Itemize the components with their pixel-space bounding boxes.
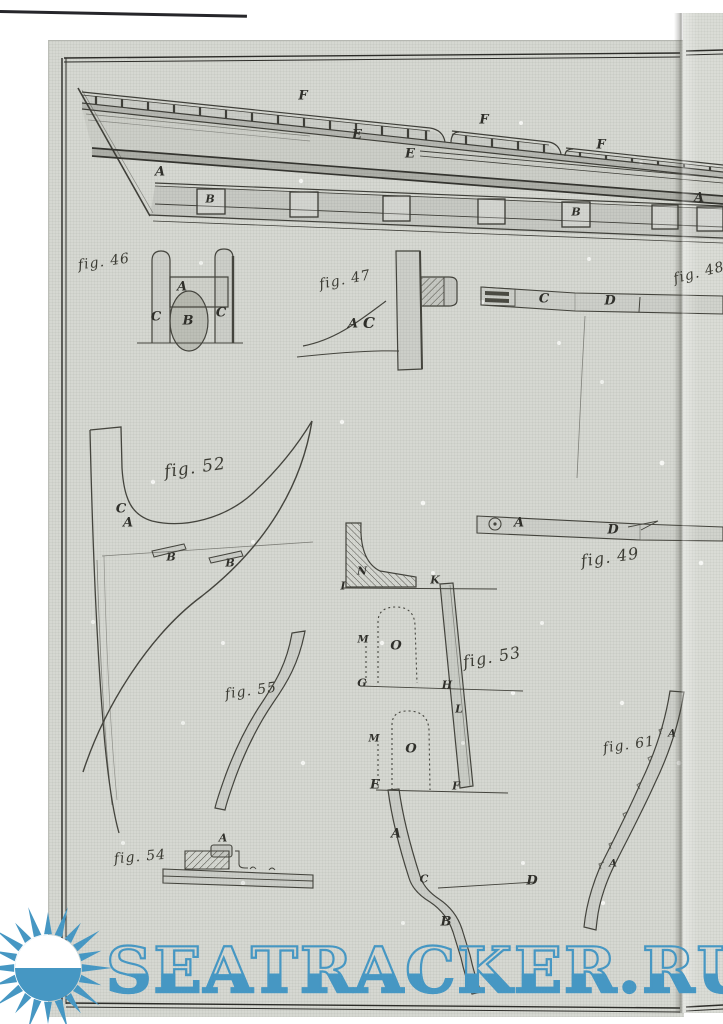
fig53-label-m1: M [357, 635, 368, 646]
fig53-label-d: D [526, 874, 537, 889]
fig46-label-c2: C [216, 306, 226, 321]
fig53-label-g: G [357, 677, 366, 690]
fig53-label-k: K [430, 574, 440, 587]
fig53-label-b: B [441, 915, 452, 930]
fig49-label-d: D [607, 523, 618, 538]
ship-label-f3: F [596, 138, 605, 153]
ship-label-f2: F [479, 113, 488, 128]
ship-label-b2: B [571, 206, 580, 219]
fig53-label-i: I [340, 580, 345, 593]
fig53-label-n: N [357, 565, 367, 578]
fig46-label-b: B [183, 314, 194, 329]
fig46-label-c1: C [151, 310, 161, 325]
scan-artifact-line [0, 10, 247, 17]
fig53-label-m2: M [368, 734, 379, 745]
fig53-label-c: C [420, 873, 429, 886]
fig52-label-c: C [116, 502, 126, 517]
plate-paper [48, 40, 684, 1017]
fig52-label-b1: B [166, 551, 175, 564]
fig53-label-o1: O [390, 639, 401, 654]
fig48-label-c: C [539, 292, 549, 307]
fig49-label-a: A [514, 516, 524, 531]
ship-label-e1: E [352, 128, 362, 143]
scanned-plate-page: F F F E E A A B B fig. 46 A B C C fig. 4… [0, 0, 723, 1024]
fig46-label-a: A [177, 280, 187, 295]
fig53-label-l: L [455, 703, 463, 716]
fig47-label-c: C [363, 314, 375, 332]
ship-label-a1: A [155, 165, 165, 180]
fig52-label-b2: B [225, 557, 234, 570]
fig53-label-a: A [391, 827, 401, 842]
fig47-label-a: A [348, 317, 358, 332]
ship-label-e2: E [405, 147, 415, 162]
fig61-label-a1: A [668, 729, 676, 740]
fig53-label-h: H [442, 679, 452, 692]
fig48-label-d: D [604, 294, 615, 309]
fig61-label-a2: A [609, 859, 617, 870]
ship-label-f1: F [298, 89, 307, 104]
fig53-label-e: E [370, 778, 380, 793]
fig52-label-a: A [123, 516, 133, 531]
ship-label-a2: A [694, 191, 704, 206]
fig53-label-o2: O [405, 742, 416, 757]
fig53-label-f: F [452, 780, 460, 793]
paper-speckles [0, 0, 2, 2]
fig54-label-a: A [219, 832, 228, 845]
plate-paper-right-of-fold [683, 13, 723, 1013]
ship-label-b1: B [205, 193, 214, 206]
